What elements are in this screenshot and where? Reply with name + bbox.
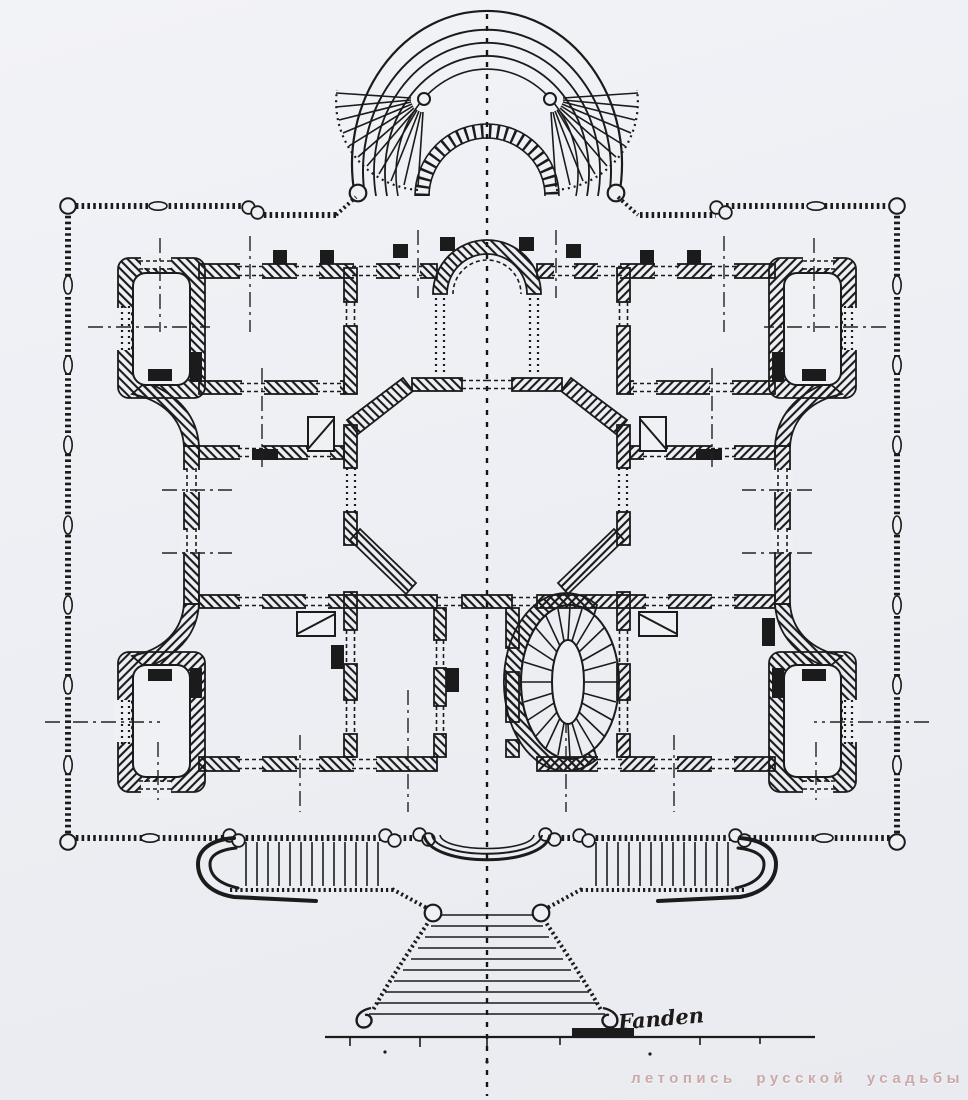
- site-watermark: летопись русской усадьбы: [592, 1070, 964, 1087]
- garden-stairs: [198, 835, 815, 1064]
- floor-plan-drawing: [0, 0, 968, 1100]
- floor-plan-scan: Fanden летопись русской усадьбы: [0, 0, 968, 1100]
- oval-staircase-icon: [504, 593, 619, 771]
- stove-block: [762, 618, 775, 646]
